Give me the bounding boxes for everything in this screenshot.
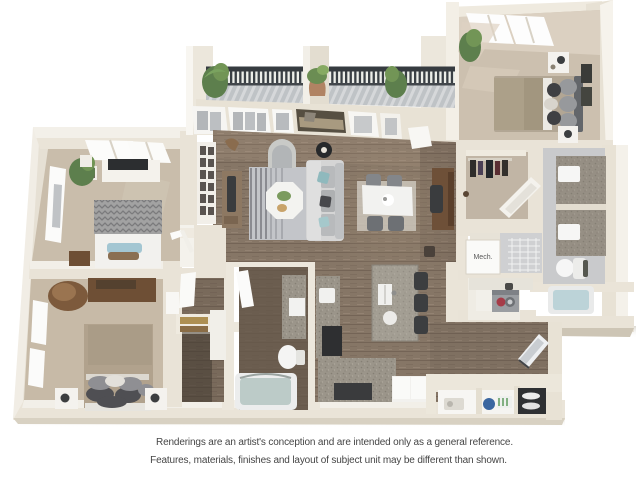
svg-text:Mech.: Mech. bbox=[473, 254, 492, 261]
